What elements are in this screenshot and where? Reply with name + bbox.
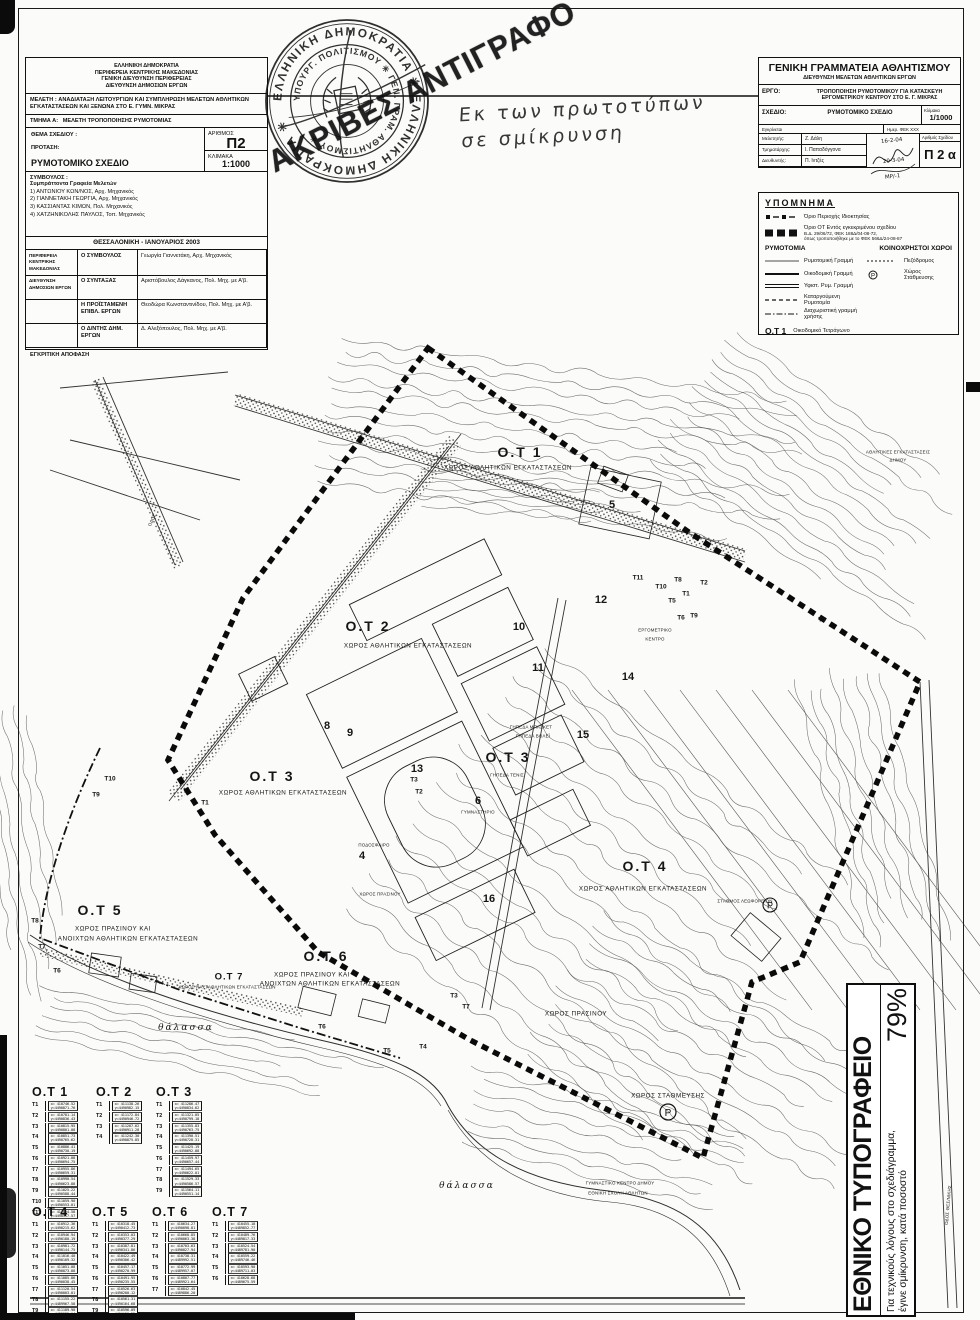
vertex-id: T3 [212, 1243, 226, 1253]
ot-coordinate-table: Ο.Τ 1 T1 x= 410746.52y=4490871.76 T2 x= … [32, 1085, 78, 1220]
ot-table-row: T9 x= 411025.22y=4490588.44 [32, 1187, 78, 1197]
ot-table-row: T6 x= 411085.86y=4490038.45 [32, 1275, 78, 1285]
vertex-coords: x= 410455.18y=4489852.77 [228, 1221, 258, 1231]
ot-table-row: T3 x= 410703.63y=4490027.94 [152, 1243, 198, 1253]
vertex-coords: x= 411120.54y=4490003.01 [48, 1286, 78, 1296]
scan-mark [0, 0, 15, 34]
vertex-id: T3 [32, 1123, 46, 1133]
vertex-coords: x= 410353.03y=4490377.29 [108, 1232, 138, 1242]
ot-table-row: T4 x= 410422.49y=4490306.42 [92, 1253, 138, 1263]
vertex-id: T8 [92, 1296, 106, 1306]
ot-table-title: Ο.Τ 7 [212, 1205, 258, 1219]
ot-table-row: T5 x= 410886.41y=4490730.19 [32, 1144, 78, 1154]
vertex-id: T5 [32, 1144, 46, 1154]
vertex-coords: x= 410561.31y=4490164.68 [108, 1296, 138, 1306]
vertex-coords: x= 411321.05y=4490799.18 [172, 1112, 202, 1122]
vertex-coords: x= 410886.41y=4490730.19 [48, 1144, 78, 1154]
ot-table-row: T6 x= 410921.08y=4490694.75 [32, 1155, 78, 1165]
ot-table-title: Ο.Τ 4 [32, 1205, 78, 1219]
vertex-id: T6 [32, 1155, 46, 1165]
ot-table-row: T1 x= 410318.45y=4490412.73 [92, 1221, 138, 1231]
vertex-coords: x= 411390.51y=4490728.31 [172, 1133, 202, 1143]
vertex-coords: x= 410703.63y=4490027.94 [168, 1243, 198, 1253]
ot-table-title: Ο.Τ 1 [32, 1085, 78, 1099]
printing-house-title: ΕΘΝΙΚΟ ΤΥΠΟΓΡΑΦΕΙΟ [848, 985, 881, 1315]
vertex-id: T6 [152, 1275, 166, 1285]
ot-coordinate-table: Ο.Τ 2 T1 x= 411138.26y=4490982.15 T2 x= … [96, 1085, 142, 1144]
vertex-id: T5 [156, 1144, 170, 1154]
vertex-id: T3 [92, 1243, 106, 1253]
vertex-id: T5 [152, 1264, 166, 1274]
vertex-id: T5 [32, 1264, 46, 1274]
vertex-id: T8 [32, 1296, 46, 1306]
vertex-coords: x= 411138.26y=4490982.15 [112, 1101, 142, 1111]
vertex-coords: x= 411459.97y=4490657.44 [172, 1155, 202, 1165]
vertex-coords: x= 410912.36y=4490215.62 [48, 1221, 78, 1231]
scan-mark [0, 1035, 7, 1320]
ot-table-row: T4 x= 411390.51y=4490728.31 [156, 1133, 202, 1143]
vertex-coords: x= 410946.94y=4490180.19 [48, 1232, 78, 1242]
ot-table-row: T4 x= 411016.40y=4490109.32 [32, 1253, 78, 1263]
vertex-id: T2 [152, 1232, 166, 1242]
vertex-id: T8 [156, 1176, 170, 1186]
vertex-id: T1 [96, 1101, 110, 1111]
ot-table-row: T7 x= 410955.86y=4490659.31 [32, 1166, 78, 1176]
vertex-id: T1 [156, 1101, 170, 1111]
vertex-coords: x= 410524.54y=4489781.90 [228, 1243, 258, 1253]
vertex-coords: x= 411025.22y=4490588.44 [48, 1187, 78, 1197]
ot-table-row: T5 x= 411425.19y=4490692.88 [156, 1144, 202, 1154]
ot-table-row: T8 x= 410561.31y=4490164.68 [92, 1296, 138, 1306]
ot-table-row: T4 x= 410559.22y=4489746.46 [212, 1253, 258, 1263]
vertex-id: T6 [212, 1275, 226, 1285]
reduction-note-2: έγινε σμίκρυνση, κατά ποσοστό [898, 1044, 910, 1312]
vertex-coords: x= 410457.17y=4490270.99 [108, 1264, 138, 1274]
vertex-coords: x= 411355.83y=4490763.75 [172, 1123, 202, 1133]
vertex-id: T2 [32, 1112, 46, 1122]
ot-table-row: T1 x= 410455.18y=4489852.77 [212, 1221, 258, 1231]
ot-table-row: T5 x= 410772.99y=4489957.07 [152, 1264, 198, 1274]
vertex-id: T4 [152, 1253, 166, 1263]
vertex-coords: x= 410668.85y=4490063.38 [168, 1232, 198, 1242]
vertex-id: T6 [156, 1155, 170, 1165]
vertex-id: T6 [32, 1275, 46, 1285]
ot-coordinate-table: Ο.Τ 6 T1 x= 410634.27y=4490098.81 T2 x= … [152, 1205, 198, 1296]
vertex-coords: x= 410990.54y=4490623.88 [48, 1176, 78, 1186]
ot-table-row: T2 x= 411172.84y=4490946.72 [96, 1112, 142, 1122]
vertex-coords: x= 411155.22y=4489967.58 [48, 1296, 78, 1306]
vertex-id: T3 [152, 1243, 166, 1253]
ot-table-row: T6 x= 411459.97y=4490657.44 [156, 1155, 202, 1165]
vertex-id: T6 [92, 1275, 106, 1285]
vertex-id: T1 [152, 1221, 166, 1231]
vertex-id: T5 [212, 1264, 226, 1274]
ot-table-row: T1 x= 411138.26y=4490982.15 [96, 1101, 142, 1111]
vertex-id: T2 [156, 1112, 170, 1122]
ot-table-row: T1 x= 410746.52y=4490871.76 [32, 1101, 78, 1111]
vertex-id: T4 [96, 1133, 110, 1143]
ot-table-row: T6 x= 410491.95y=4490235.55 [92, 1275, 138, 1285]
ot-table-row: T2 x= 411321.05y=4490799.18 [156, 1112, 202, 1122]
coordinate-tables: Ο.Τ 1 T1 x= 410746.52y=4490871.76 T2 x= … [0, 0, 980, 1320]
vertex-coords: x= 410491.95y=4490235.55 [108, 1275, 138, 1285]
ot-coordinate-table: Ο.Τ 5 T1 x= 410318.45y=4490412.73 T2 x= … [92, 1205, 138, 1318]
vertex-id: T8 [32, 1176, 46, 1186]
ot-table-row: T7 x= 411494.65y=4490622.01 [156, 1166, 202, 1176]
ot-table-row: T4 x= 411242.30y=4490875.85 [96, 1133, 142, 1143]
vertex-coords: x= 410781.14y=4490836.43 [48, 1112, 78, 1122]
ot-table-title: Ο.Τ 2 [96, 1085, 142, 1099]
vertex-id: T4 [156, 1133, 170, 1143]
plan-sheet: P P Ο.Τ 1ΧΩΡΟΣ ΑΘΛΗΤΙΚΩΝ ΕΓΚΑΤΑΣΤΑΣΕΩΝΟ.… [0, 0, 980, 1320]
vertex-coords: x= 410593.90y=4489711.03 [228, 1264, 258, 1274]
ot-table-row: T2 x= 410946.94y=4490180.19 [32, 1232, 78, 1242]
vertex-coords: x= 410526.63y=4490200.12 [108, 1286, 138, 1296]
ot-table-title: Ο.Τ 6 [152, 1205, 198, 1219]
ot-table-row: T8 x= 410990.54y=4490623.88 [32, 1176, 78, 1186]
vertex-id: T2 [92, 1232, 106, 1242]
vertex-id: T3 [96, 1123, 110, 1133]
ot-table-row: T2 x= 410353.03y=4490377.29 [92, 1232, 138, 1242]
reduction-percent: 79% [882, 988, 913, 1042]
ot-table-row: T8 x= 411155.22y=4489967.58 [32, 1296, 78, 1306]
ot-table-row: T3 x= 410387.81y=4490341.86 [92, 1243, 138, 1253]
ot-table-row: T2 x= 410489.76y=4489817.33 [212, 1232, 258, 1242]
vertex-id: T7 [152, 1286, 166, 1296]
vertex-coords: x= 411494.65y=4490622.01 [172, 1166, 202, 1176]
ot-table-row: T3 x= 410981.72y=4490144.75 [32, 1243, 78, 1253]
vertex-id: T2 [212, 1232, 226, 1242]
ot-coordinate-table: Ο.Τ 4 T1 x= 410912.36y=4490215.62 T2 x= … [32, 1205, 78, 1318]
ot-table-title: Ο.Τ 5 [92, 1205, 138, 1219]
scan-mark [966, 382, 980, 392]
ot-table-row: T1 x= 411286.47y=4490834.62 [156, 1101, 202, 1111]
vertex-coords: x= 410851.73y=4490765.62 [48, 1133, 78, 1143]
vertex-id: T1 [32, 1221, 46, 1231]
vertex-id: T3 [32, 1243, 46, 1253]
ot-table-row: T7 x= 410526.63y=4490200.12 [92, 1286, 138, 1296]
vertex-coords: x= 410772.99y=4489957.07 [168, 1264, 198, 1274]
ot-table-row: T8 x= 411529.33y=4490586.57 [156, 1176, 202, 1186]
vertex-coords: x= 410559.22y=4489746.46 [228, 1253, 258, 1263]
vertex-coords: x= 411529.33y=4490586.57 [172, 1176, 202, 1186]
vertex-coords: x= 410746.52y=4490871.76 [48, 1101, 78, 1111]
national-printing-house-box: ΕΘΝΙΚΟ ΤΥΠΟΓΡΑΦΕΙΟ Για τεχνικούς λόγους … [846, 983, 916, 1317]
vertex-coords: x= 411564.11y=4490551.14 [172, 1187, 202, 1197]
ot-table-row: T2 x= 410781.14y=4490836.43 [32, 1112, 78, 1122]
vertex-id: T9 [32, 1187, 46, 1197]
vertex-id: T2 [32, 1232, 46, 1242]
vertex-coords: x= 410981.72y=4490144.75 [48, 1243, 78, 1253]
vertex-coords: x= 411016.40y=4490109.32 [48, 1253, 78, 1263]
ot-table-row: T4 x= 410738.31y=4489992.51 [152, 1253, 198, 1263]
ot-table-row: T4 x= 410851.73y=4490765.62 [32, 1133, 78, 1143]
vertex-coords: x= 410489.76y=4489817.33 [228, 1232, 258, 1242]
vertex-coords: x= 411085.86y=4490038.45 [48, 1275, 78, 1285]
ot-table-row: T5 x= 410457.17y=4490270.99 [92, 1264, 138, 1274]
ot-table-row: T3 x= 411207.62y=4490911.28 [96, 1123, 142, 1133]
vertex-coords: x= 410815.95y=4490801.08 [48, 1123, 78, 1133]
vertex-id: T4 [212, 1253, 226, 1263]
vertex-id: T7 [92, 1286, 106, 1296]
vertex-id: T7 [32, 1286, 46, 1296]
ot-coordinate-table: Ο.Τ 3 T1 x= 411286.47y=4490834.62 T2 x= … [156, 1085, 202, 1198]
ot-table-row: T3 x= 410815.95y=4490801.08 [32, 1123, 78, 1133]
vertex-id: T7 [32, 1166, 46, 1176]
vertex-id: T4 [32, 1253, 46, 1263]
ot-table-row: T7 x= 410842.45y=4489886.20 [152, 1286, 198, 1296]
ot-table-row: T1 x= 410912.36y=4490215.62 [32, 1221, 78, 1231]
ot-table-row: T6 x= 410807.77y=4489921.64 [152, 1275, 198, 1285]
vertex-coords: x= 411286.47y=4490834.62 [172, 1101, 202, 1111]
ot-table-row: T3 x= 411355.83y=4490763.75 [156, 1123, 202, 1133]
ot-table-row: T9 x= 411564.11y=4490551.14 [156, 1187, 202, 1197]
vertex-coords: x= 410807.77y=4489921.64 [168, 1275, 198, 1285]
ot-table-title: Ο.Τ 3 [156, 1085, 202, 1099]
vertex-id: T3 [156, 1123, 170, 1133]
vertex-coords: x= 411242.30y=4490875.85 [112, 1133, 142, 1143]
ot-table-row: T1 x= 410634.27y=4490098.81 [152, 1221, 198, 1231]
vertex-coords: x= 410628.68y=4489675.59 [228, 1275, 258, 1285]
ot-table-row: T5 x= 410593.90y=4489711.03 [212, 1264, 258, 1274]
vertex-id: T1 [32, 1101, 46, 1111]
vertex-id: T1 [212, 1221, 226, 1231]
vertex-id: T4 [92, 1253, 106, 1263]
ot-coordinate-table: Ο.Τ 7 T1 x= 410455.18y=4489852.77 T2 x= … [212, 1205, 258, 1286]
vertex-coords: x= 410634.27y=4490098.81 [168, 1221, 198, 1231]
vertex-id: T2 [96, 1112, 110, 1122]
vertex-coords: x= 411425.19y=4490692.88 [172, 1144, 202, 1154]
vertex-coords: x= 410955.86y=4490659.31 [48, 1166, 78, 1176]
ot-table-row: T3 x= 410524.54y=4489781.90 [212, 1243, 258, 1253]
ot-table-row: T5 x= 411051.08y=4490073.88 [32, 1264, 78, 1274]
vertex-coords: x= 410738.31y=4489992.51 [168, 1253, 198, 1263]
vertex-id: T7 [156, 1166, 170, 1176]
vertex-coords: x= 410842.45y=4489886.20 [168, 1286, 198, 1296]
vertex-coords: x= 410387.81y=4490341.86 [108, 1243, 138, 1253]
vertex-coords: x= 410422.49y=4490306.42 [108, 1253, 138, 1263]
vertex-coords: x= 411172.84y=4490946.72 [112, 1112, 142, 1122]
vertex-coords: x= 410921.08y=4490694.75 [48, 1155, 78, 1165]
vertex-id: T4 [32, 1133, 46, 1143]
vertex-id: T1 [92, 1221, 106, 1231]
vertex-id: T9 [156, 1187, 170, 1197]
ot-table-row: T6 x= 410628.68y=4489675.59 [212, 1275, 258, 1285]
reduction-note-1: Για τεχνικούς λόγους στο σχεδιάγραμμα, [886, 1044, 898, 1312]
scan-mark [0, 1188, 16, 1258]
vertex-coords: x= 410318.45y=4490412.73 [108, 1221, 138, 1231]
vertex-coords: x= 411051.08y=4490073.88 [48, 1264, 78, 1274]
scan-mark [0, 1313, 355, 1320]
vertex-coords: x= 411207.62y=4490911.28 [112, 1123, 142, 1133]
vertex-id: T5 [92, 1264, 106, 1274]
ot-table-row: T2 x= 410668.85y=4490063.38 [152, 1232, 198, 1242]
ot-table-row: T7 x= 411120.54y=4490003.01 [32, 1286, 78, 1296]
